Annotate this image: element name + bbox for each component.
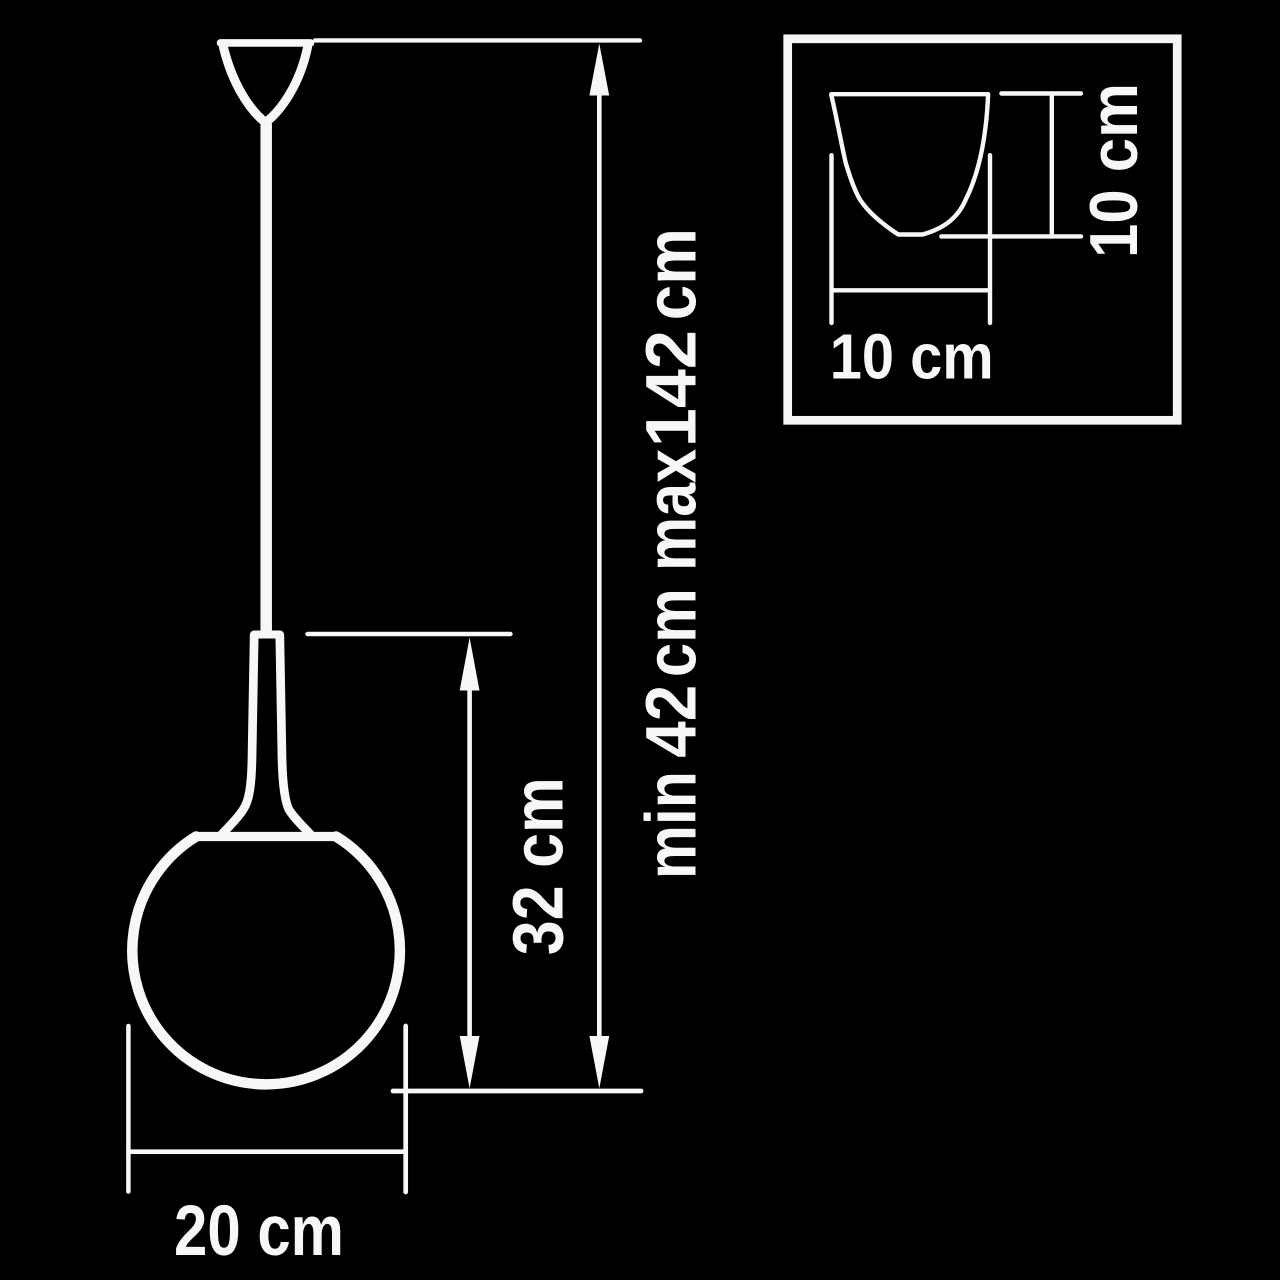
svg-text:min: min xyxy=(633,771,712,879)
svg-text:cm: cm xyxy=(633,588,712,677)
svg-text:42: 42 xyxy=(633,685,712,758)
svg-text:20 cm: 20 cm xyxy=(174,1192,344,1271)
svg-text:10 cm: 10 cm xyxy=(830,321,994,393)
svg-text:10 cm: 10 cm xyxy=(1076,83,1152,258)
svg-text:32 cm: 32 cm xyxy=(499,777,578,955)
svg-text:max: max xyxy=(633,449,712,571)
svg-text:cm: cm xyxy=(633,228,712,320)
svg-text:142: 142 xyxy=(633,330,712,447)
